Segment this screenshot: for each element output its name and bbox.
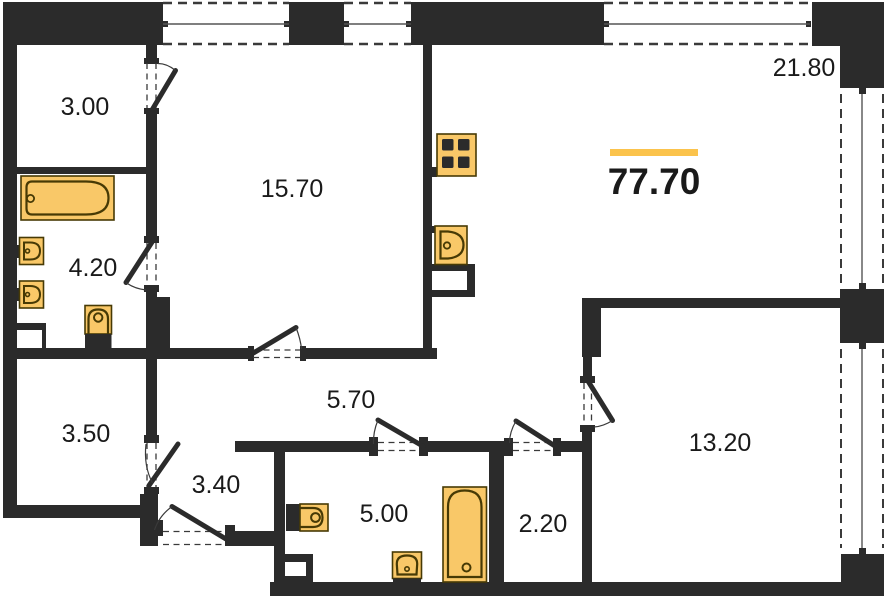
svg-text:3.00: 3.00 (61, 93, 110, 121)
svg-text:5.70: 5.70 (327, 386, 376, 414)
svg-text:13.20: 13.20 (689, 429, 752, 457)
svg-text:15.70: 15.70 (261, 175, 324, 203)
svg-text:3.50: 3.50 (62, 420, 111, 448)
svg-text:5.00: 5.00 (360, 500, 409, 528)
svg-text:2.20: 2.20 (519, 510, 568, 538)
svg-text:21.80: 21.80 (773, 54, 836, 82)
svg-text:77.70: 77.70 (608, 161, 701, 202)
svg-text:3.40: 3.40 (192, 471, 241, 499)
svg-text:4.20: 4.20 (69, 254, 118, 282)
